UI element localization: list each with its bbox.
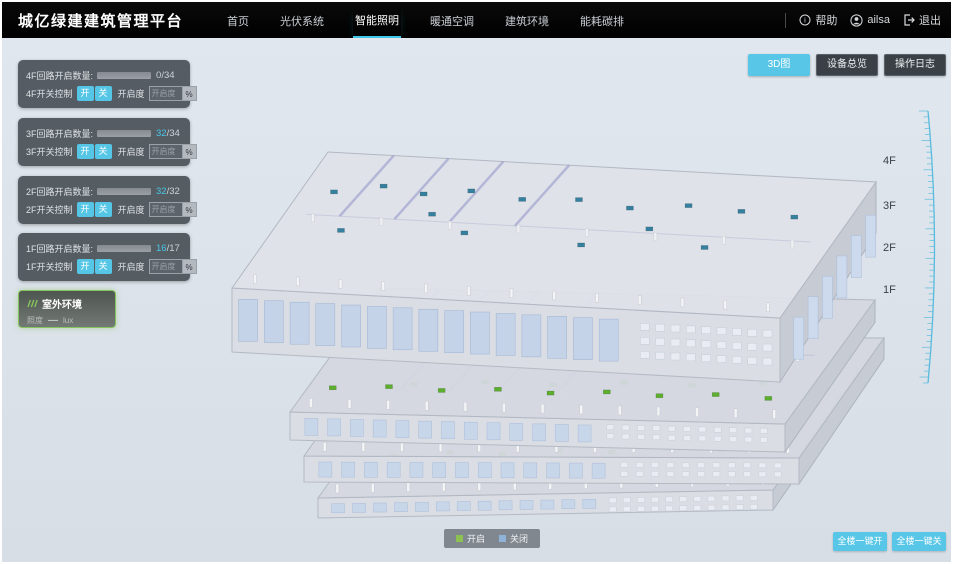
on-button[interactable]: 开 (77, 259, 94, 274)
dim-label: 开启度 (118, 145, 145, 158)
user-menu[interactable]: ailsa (850, 14, 890, 27)
header-divider (785, 13, 786, 28)
circuit-count-label: 1F回路开启数量: (26, 242, 93, 255)
switch-control-label: 3F开关控制 (26, 145, 73, 158)
progress-bar (97, 245, 151, 252)
illuminance-value: — (48, 315, 58, 326)
nav-pv-system[interactable]: 光伏系统 (278, 3, 326, 37)
total-count: /34 (161, 70, 174, 81)
circuit-count-label: 4F回路开启数量: (26, 69, 93, 82)
off-button[interactable]: 关 (95, 86, 112, 101)
floor-panel-2f: 2F回路开启数量: 32/32 2F开关控制 开关 开启度 % (18, 176, 190, 224)
nav-energy-carbon[interactable]: 能耗碳排 (578, 3, 626, 37)
nav-home[interactable]: 首页 (225, 3, 251, 37)
user-avatar-icon (850, 14, 863, 27)
dim-input[interactable] (149, 202, 182, 217)
off-button[interactable]: 关 (95, 144, 112, 159)
off-button[interactable]: 关 (95, 202, 112, 217)
dim-label: 开启度 (118, 87, 145, 100)
floor-panel-3f: 3F回路开启数量: 32/34 3F开关控制 开关 开启度 % (18, 118, 190, 166)
header-user-area: i 帮助 ailsa 退出 (785, 12, 941, 28)
total-count: /32 (167, 186, 180, 197)
device-overview-button[interactable]: 设备总览 (816, 54, 878, 76)
percent-apply-button[interactable]: % (182, 202, 197, 217)
dim-label: 开启度 (118, 203, 145, 216)
progress-bar (97, 188, 151, 195)
dim-input[interactable] (149, 144, 182, 159)
nav-hvac[interactable]: 暖通空调 (428, 3, 476, 37)
floor-panel-1f: 1F回路开启数量: 16/17 1F开关控制 开关 开启度 % (18, 233, 190, 281)
switch-control-label: 1F开关控制 (26, 260, 73, 273)
open-count: 32 (156, 186, 167, 197)
legend-off-swatch (499, 535, 506, 542)
circuit-count-label: 3F回路开启数量: (26, 127, 93, 140)
axis-label-4f[interactable]: 4F (883, 155, 907, 167)
building-3d-view[interactable] (224, 96, 889, 526)
circuit-count-label: 2F回路开启数量: (26, 185, 93, 198)
illuminance-label: 照度 (27, 315, 43, 326)
on-button[interactable]: 开 (77, 86, 94, 101)
legend-on-swatch (456, 535, 463, 542)
app-window: 城亿绿建建筑管理平台 首页 光伏系统 智能照明 暖通空调 建筑环境 能耗碳排 i… (0, 0, 953, 564)
help-button[interactable]: i 帮助 (799, 12, 837, 28)
view-3d-button[interactable]: 3D图 (748, 54, 810, 76)
svg-text:i: i (805, 16, 807, 25)
axis-label-3f[interactable]: 3F (883, 200, 907, 212)
main-nav: 首页 光伏系统 智能照明 暖通空调 建筑环境 能耗碳排 (225, 2, 626, 38)
percent-apply-button[interactable]: % (182, 86, 197, 101)
logout-icon (903, 14, 915, 26)
username: ailsa (867, 14, 890, 26)
floor-ruler[interactable] (908, 106, 952, 390)
open-count: 32 (156, 128, 167, 139)
outdoor-env-icon (27, 299, 38, 308)
main-content: 3D图 设备总览 操作日志 4F回路开启数量: 0/34 4F开关控制 开关 开… (2, 38, 951, 562)
on-button[interactable]: 开 (77, 202, 94, 217)
logout-button[interactable]: 退出 (903, 12, 941, 28)
dim-input[interactable] (149, 86, 182, 101)
percent-apply-button[interactable]: % (182, 144, 197, 159)
legend-off-label: 关闭 (510, 532, 528, 545)
operation-log-button[interactable]: 操作日志 (884, 54, 946, 76)
view-switcher: 3D图 设备总览 操作日志 (748, 54, 946, 76)
switch-control-label: 4F开关控制 (26, 87, 73, 100)
open-count: 16 (156, 243, 167, 254)
info-icon: i (799, 14, 811, 26)
dim-input[interactable] (149, 259, 182, 274)
floor-panel-4f: 4F回路开启数量: 0/34 4F开关控制 开关 开启度 % (18, 60, 190, 108)
all-off-button[interactable]: 全楼一键关 (892, 532, 946, 551)
axis-label-1f[interactable]: 1F (883, 284, 907, 296)
switch-control-label: 2F开关控制 (26, 203, 73, 216)
light-state-legend: 开启 关闭 (444, 529, 540, 548)
nav-building-env[interactable]: 建筑环境 (503, 3, 551, 37)
dim-label: 开启度 (118, 260, 145, 273)
nav-smart-lighting[interactable]: 智能照明 (353, 2, 401, 38)
axis-label-2f[interactable]: 2F (883, 242, 907, 254)
top-navbar: 城亿绿建建筑管理平台 首页 光伏系统 智能照明 暖通空调 建筑环境 能耗碳排 i… (2, 2, 951, 38)
illuminance-unit: lux (63, 316, 73, 325)
progress-bar (97, 130, 151, 137)
percent-apply-button[interactable]: % (182, 259, 197, 274)
building-master-controls: 全楼一键开 全楼一键关 (833, 532, 946, 551)
off-button[interactable]: 关 (95, 259, 112, 274)
legend-on-label: 开启 (467, 532, 485, 545)
total-count: /34 (167, 128, 180, 139)
progress-bar (97, 72, 151, 79)
on-button[interactable]: 开 (77, 144, 94, 159)
outdoor-env-panel: 室外环境 照度 — lux (18, 290, 116, 328)
outdoor-env-title: 室外环境 (42, 296, 82, 311)
app-title: 城亿绿建建筑管理平台 (18, 10, 183, 31)
all-on-button[interactable]: 全楼一键开 (833, 532, 887, 551)
total-count: /17 (167, 243, 180, 254)
